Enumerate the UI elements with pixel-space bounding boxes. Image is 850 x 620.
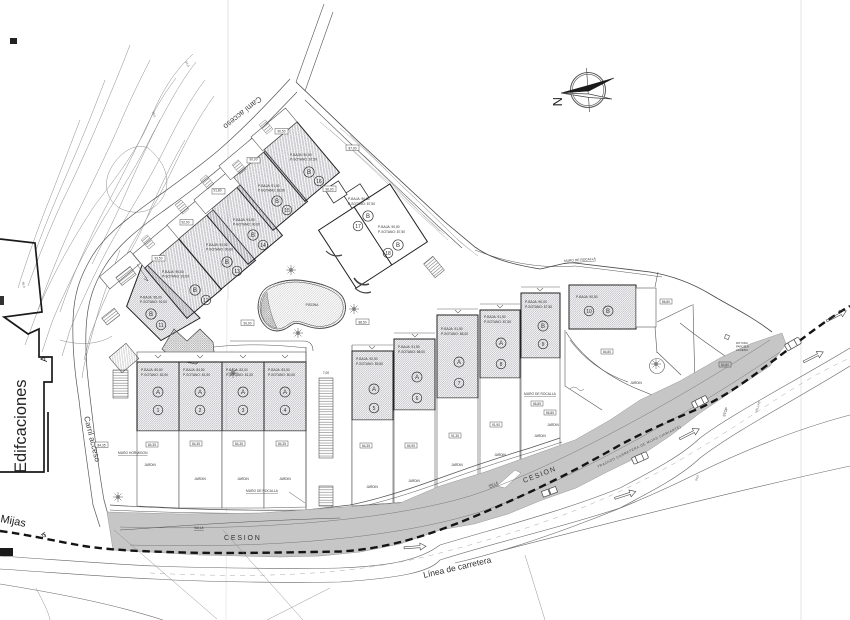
svg-text:91,80: 91,80 xyxy=(214,189,222,193)
svg-text:90,00: 90,00 xyxy=(250,158,258,162)
svg-text:JARDIN: JARDIN xyxy=(547,423,559,427)
svg-text:A: A xyxy=(415,375,419,381)
svg-text:P-BAJA: 91,50: P-BAJA: 91,50 xyxy=(258,184,280,188)
svg-text:P-SOTANO: 82,50: P-SOTANO: 82,50 xyxy=(141,373,168,377)
svg-text:84,35: 84,35 xyxy=(362,444,370,448)
svg-text:P-BAJA: 83,00: P-BAJA: 83,00 xyxy=(226,368,248,372)
svg-text:P-BAJA: 83,50: P-BAJA: 83,50 xyxy=(268,368,290,372)
svg-text:87,00: 87,00 xyxy=(349,147,357,151)
svg-text:15: 15 xyxy=(284,208,290,214)
svg-text:P-BAJA: 85,50: P-BAJA: 85,50 xyxy=(141,368,163,372)
svg-text:B: B xyxy=(275,199,279,205)
svg-text:P-BAJA: 90,50: P-BAJA: 90,50 xyxy=(378,225,400,229)
svg-text:CESION: CESION xyxy=(224,535,262,542)
svg-text:P-SOTANO: 90,00: P-SOTANO: 90,00 xyxy=(206,248,233,252)
svg-text:13: 13 xyxy=(234,269,240,275)
svg-text:P-SOTANO: 81,50: P-SOTANO: 81,50 xyxy=(183,373,210,377)
svg-text:P-SOTANO: 90,00: P-SOTANO: 90,00 xyxy=(233,223,260,227)
svg-text:P-SOTANO: 88,00: P-SOTANO: 88,00 xyxy=(398,350,425,354)
svg-text:5: 5 xyxy=(373,406,376,412)
svg-text:84,35: 84,35 xyxy=(235,442,243,446)
svg-text:17: 17 xyxy=(355,224,361,230)
svg-text:PISCINA: PISCINA xyxy=(306,303,320,307)
svg-text:JARDIN: JARDIN xyxy=(534,434,546,438)
svg-text:3: 3 xyxy=(242,408,245,414)
svg-text:86,85: 86,85 xyxy=(533,402,541,406)
svg-text:P-SOTANO: 87,50: P-SOTANO: 87,50 xyxy=(378,230,405,234)
svg-text:B: B xyxy=(225,260,229,266)
svg-text:JARDIN: JARDIN xyxy=(194,477,206,481)
svg-text:A: A xyxy=(39,356,49,362)
svg-text:P-BAJA: 84,50: P-BAJA: 84,50 xyxy=(183,368,205,372)
svg-text:P-SOTANO: 81,00: P-SOTANO: 81,00 xyxy=(226,373,253,377)
svg-text:P-BAJA: 91,50: P-BAJA: 91,50 xyxy=(441,327,463,331)
svg-text:10: 10 xyxy=(586,309,592,315)
svg-text:MURO HORMIGON: MURO HORMIGON xyxy=(118,451,148,455)
svg-text:A: A xyxy=(372,387,376,393)
svg-text:N: N xyxy=(550,97,565,106)
svg-text:P-BAJA: 92,50: P-BAJA: 92,50 xyxy=(356,357,378,361)
svg-text:A: A xyxy=(241,390,245,396)
svg-text:P-SOTANO: 88,50: P-SOTANO: 88,50 xyxy=(258,189,285,193)
svg-text:P-BAJA: 91,50: P-BAJA: 91,50 xyxy=(484,315,506,319)
svg-text:JARDIN: JARDIN xyxy=(451,463,463,467)
svg-text:84,35: 84,35 xyxy=(192,442,200,446)
svg-text:86,85: 86,85 xyxy=(546,411,554,415)
svg-text:84,80: 84,80 xyxy=(603,350,611,354)
svg-text:A: A xyxy=(198,390,202,396)
svg-text:91,35: 91,35 xyxy=(451,434,459,438)
svg-text:Edifcaciones: Edifcaciones xyxy=(12,379,30,473)
svg-text:16: 16 xyxy=(316,179,322,185)
svg-text:JARDIN: JARDIN xyxy=(144,463,156,467)
svg-text:MURO DE ROCALLA: MURO DE ROCALLA xyxy=(246,489,279,493)
svg-text:JARDIN: JARDIN xyxy=(237,477,249,481)
svg-text:A: A xyxy=(499,341,503,347)
svg-text:7,00: 7,00 xyxy=(323,371,329,375)
svg-text:4: 4 xyxy=(284,408,287,414)
svg-text:92,00: 92,00 xyxy=(182,221,190,225)
svg-text:88,50: 88,50 xyxy=(359,321,367,325)
svg-text:93,50: 93,50 xyxy=(155,257,163,261)
svg-text:B: B xyxy=(149,312,153,318)
svg-text:9: 9 xyxy=(542,342,545,348)
svg-text:B: B xyxy=(606,309,610,315)
svg-text:JARDIN: JARDIN xyxy=(630,381,642,385)
svg-text:B: B xyxy=(396,243,400,249)
svg-text:P-BAJA: 95,00: P-BAJA: 95,00 xyxy=(140,296,162,300)
svg-text:86,80: 86,80 xyxy=(662,300,670,304)
svg-text:90,50: 90,50 xyxy=(278,130,286,134)
svg-text:1: 1 xyxy=(157,408,160,414)
svg-text:8: 8 xyxy=(500,362,503,368)
svg-text:ACCESO: ACCESO xyxy=(736,348,749,352)
svg-text:11: 11 xyxy=(158,323,163,329)
svg-text:JARDIN: JARDIN xyxy=(408,479,420,483)
svg-text:JARDIN: JARDIN xyxy=(494,453,506,457)
svg-text:VALLA: VALLA xyxy=(194,526,205,530)
svg-text:P-SOTANO: 92,00: P-SOTANO: 92,00 xyxy=(140,300,167,304)
svg-text:B: B xyxy=(541,324,545,330)
svg-text:P-BAJA: 95,00: P-BAJA: 95,00 xyxy=(162,270,184,274)
svg-text:7: 7 xyxy=(458,381,461,387)
svg-text:P-BAJA: 91,50: P-BAJA: 91,50 xyxy=(398,345,420,349)
svg-text:P-SOTANO: 87,50: P-SOTANO: 87,50 xyxy=(525,305,552,309)
svg-text:P-BAJA: 90,50: P-BAJA: 90,50 xyxy=(576,295,598,299)
svg-text:14: 14 xyxy=(260,243,266,249)
svg-text:6: 6 xyxy=(416,396,419,402)
svg-text:96,00: 96,00 xyxy=(326,188,334,192)
svg-text:P-SOTANO: 87,50: P-SOTANO: 87,50 xyxy=(290,158,317,162)
svg-text:P-SOTANO: 87,50: P-SOTANO: 87,50 xyxy=(348,202,375,206)
svg-text:JARDIN: JARDIN xyxy=(366,485,378,489)
svg-text:B: B xyxy=(366,214,370,220)
svg-text:84,95: 84,95 xyxy=(407,444,415,448)
svg-text:A: A xyxy=(156,390,160,396)
svg-text:P-BAJA: 90,50: P-BAJA: 90,50 xyxy=(290,153,312,157)
svg-text:84,80: 84,80 xyxy=(721,363,729,367)
svg-text:A: A xyxy=(283,390,287,396)
svg-text:91,90: 91,90 xyxy=(492,423,500,427)
svg-text:P-SOTANO: 89,50: P-SOTANO: 89,50 xyxy=(356,362,383,366)
svg-text:P-SOTANO: 87,50: P-SOTANO: 87,50 xyxy=(484,320,511,324)
svg-text:12: 12 xyxy=(203,298,209,304)
svg-text:P-BAJA: 90,00: P-BAJA: 90,00 xyxy=(525,300,547,304)
svg-text:2: 2 xyxy=(199,408,202,414)
svg-text:P-SOTANO: 88,00: P-SOTANO: 88,00 xyxy=(441,332,468,336)
svg-text:18: 18 xyxy=(385,251,391,257)
svg-text:JARDIN: JARDIN xyxy=(279,477,291,481)
svg-text:B: B xyxy=(193,288,197,294)
svg-text:P-SOTANO: 92,00: P-SOTANO: 92,00 xyxy=(162,275,189,279)
svg-text:B: B xyxy=(251,233,255,239)
svg-text:84,35: 84,35 xyxy=(148,443,156,447)
svg-text:84,35: 84,35 xyxy=(278,442,286,446)
svg-text:P-BAJA: 93,50: P-BAJA: 93,50 xyxy=(233,218,255,222)
svg-text:P-BAJA: 90,50: P-BAJA: 90,50 xyxy=(348,197,370,201)
svg-text:90,00: 90,00 xyxy=(244,322,252,326)
svg-text:MURO DE ROCALLA: MURO DE ROCALLA xyxy=(524,392,557,396)
svg-text:P-SOTANO: 80,00: P-SOTANO: 80,00 xyxy=(268,373,295,377)
svg-text:P-BAJA: 93,50: P-BAJA: 93,50 xyxy=(206,243,228,247)
svg-text:A: A xyxy=(457,360,461,366)
svg-text:B: B xyxy=(307,170,311,176)
